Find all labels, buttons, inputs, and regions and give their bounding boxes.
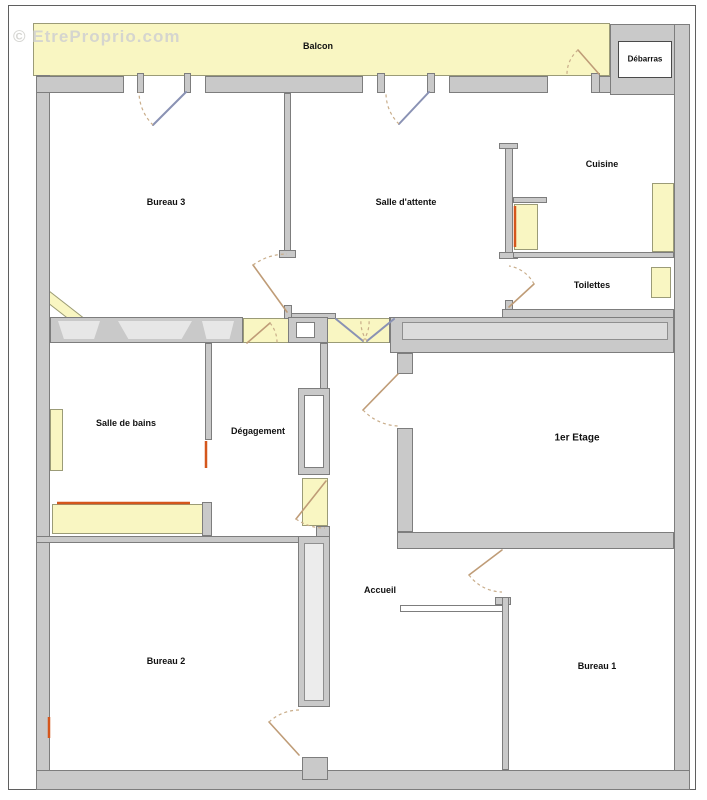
door-jamb	[591, 73, 600, 93]
column	[302, 757, 328, 780]
room-label-bureau3: Bureau 3	[147, 197, 186, 207]
wall	[513, 252, 674, 258]
wall	[502, 597, 509, 770]
room-label-debarras: Débarras	[628, 55, 663, 64]
floor-plan: © EtreProprio.com Balcon Débarras Bureau…	[0, 0, 707, 800]
radiator	[514, 204, 538, 250]
wall	[205, 76, 363, 93]
bathtub	[52, 504, 203, 534]
floor-label-1er-etage: 1er Etage	[554, 433, 599, 444]
closet-interior	[304, 395, 324, 468]
stair-band	[402, 322, 668, 340]
room-label-bureau2: Bureau 2	[147, 656, 186, 666]
wall	[513, 197, 547, 203]
glazing-panel	[296, 322, 315, 338]
watermark: © EtreProprio.com	[13, 27, 180, 47]
door-jamb	[427, 73, 435, 93]
wall	[397, 532, 674, 549]
wall	[205, 343, 212, 440]
wall	[36, 536, 330, 543]
drawing-frame	[8, 5, 696, 790]
wall	[397, 428, 413, 532]
glazing-panel	[58, 321, 100, 339]
glazing-panel	[118, 321, 192, 339]
wall	[36, 75, 50, 790]
wall	[505, 143, 513, 258]
door-jamb	[184, 73, 191, 93]
door-jamb	[499, 143, 518, 149]
wall	[320, 343, 328, 389]
closet-door-highlight	[302, 478, 328, 526]
glazing-panel	[202, 321, 234, 339]
room-label-accueil: Accueil	[364, 585, 396, 595]
wall	[674, 24, 690, 790]
room-label-degagement: Dégagement	[231, 426, 285, 436]
room-label-salle-de-bains: Salle de bains	[96, 418, 156, 428]
partition-panel-face	[304, 543, 324, 701]
door-jamb	[137, 73, 144, 93]
wall	[202, 502, 212, 536]
room-label-balcon: Balcon	[303, 41, 333, 51]
window	[652, 183, 674, 252]
door-jamb	[279, 250, 296, 258]
wall	[449, 76, 548, 93]
room-label-salle-attente: Salle d'attente	[376, 197, 437, 207]
wall	[36, 770, 690, 790]
room-label-bureau1: Bureau 1	[578, 661, 617, 671]
radiator	[50, 409, 63, 471]
wall	[284, 93, 291, 253]
wall	[36, 76, 124, 93]
room-label-toilettes: Toilettes	[574, 280, 610, 290]
room-label-cuisine: Cuisine	[586, 159, 619, 169]
toilet-fixture	[651, 267, 671, 298]
counter-partition	[400, 605, 503, 612]
wall	[397, 353, 413, 374]
door-jamb	[377, 73, 385, 93]
